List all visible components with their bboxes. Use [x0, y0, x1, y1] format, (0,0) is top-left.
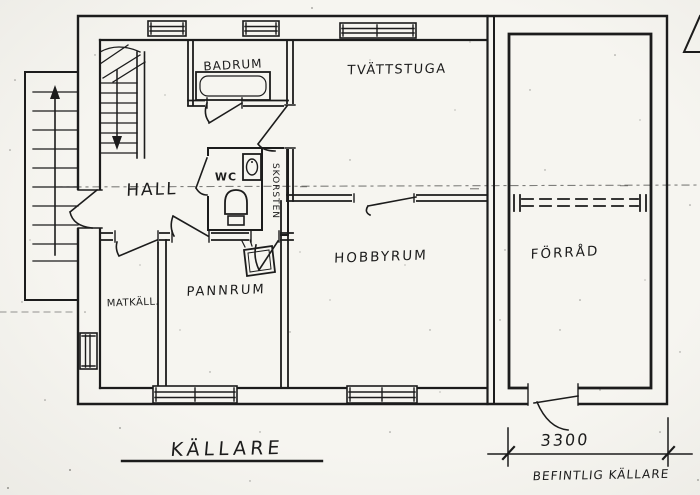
window-top-1	[148, 21, 186, 36]
sink-icon	[243, 154, 261, 180]
exterior-stairs	[25, 72, 78, 300]
room-label-pannrum: PANNRUM	[186, 282, 266, 300]
dimension-3300	[488, 418, 692, 466]
door-matkall	[116, 240, 157, 256]
room-label-hobbyrum: HOBBYRUM	[334, 247, 428, 266]
window-top-2	[243, 21, 279, 36]
bathtub-icon	[196, 72, 270, 100]
boiler-icon	[242, 240, 275, 276]
door-jambs	[78, 98, 578, 405]
storage-room-walls	[509, 34, 651, 388]
removed-wall-dashes	[514, 195, 646, 211]
toilet-icon	[225, 190, 247, 225]
window-top-3	[340, 23, 416, 38]
interior-stairs	[100, 45, 145, 158]
wc-room-walls	[208, 148, 262, 230]
room-label-wc: WC	[215, 171, 237, 184]
room-label-skorsten: SKORSTEN	[270, 163, 280, 219]
room-label-matkall: MATKÄLL.	[107, 297, 160, 310]
interior-walls	[100, 40, 487, 388]
dimension-value: 3300	[540, 430, 590, 450]
dimension-caption: BEFINTLIG KÄLLARE	[532, 467, 670, 483]
floorplan-sheet: HALL BADRUM TVÄTTSTUGA WC SKORSTEN MATKÄ…	[0, 0, 700, 495]
door-swings	[70, 103, 578, 430]
window-left	[80, 333, 97, 369]
door-tvattstuga	[258, 106, 287, 151]
revision-triangle-mark	[684, 16, 700, 52]
door-openings	[76, 98, 578, 406]
window-bottom-1	[153, 386, 237, 403]
room-label-hall: HALL	[126, 179, 178, 201]
window-bottom-2	[347, 386, 417, 403]
plan-title: KÄLLARE	[170, 437, 285, 461]
room-label-tvattstuga: TVÄTTSTUGA	[347, 62, 447, 79]
